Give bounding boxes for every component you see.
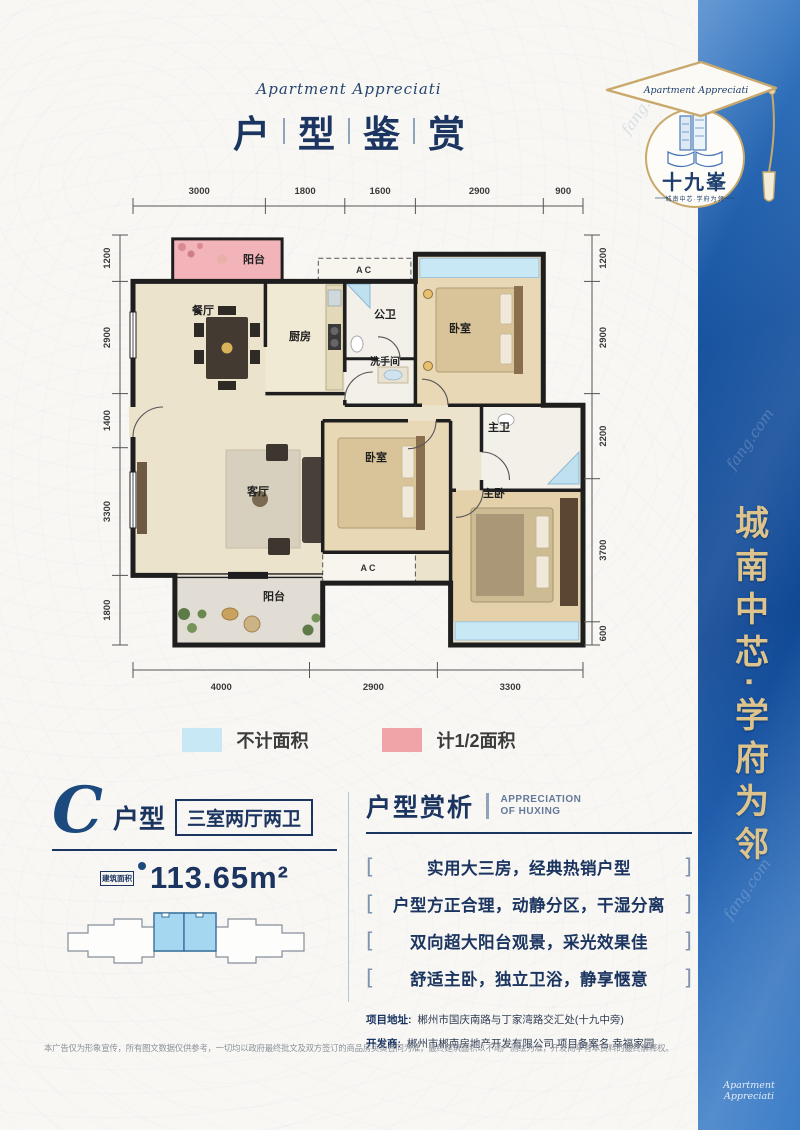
dim-label: 2200 — [598, 426, 609, 447]
section-divider-line — [348, 792, 349, 1002]
room-label-kitchen: 厨房 — [289, 329, 311, 343]
unit-info: C 户型 三室两厅两卫 建筑面积 113.65m² — [52, 782, 337, 896]
keyplan — [58, 893, 316, 989]
keyplan-highlight-units — [154, 913, 216, 951]
analysis-subtitle-line2: OF HUXING — [501, 806, 561, 817]
analysis-point-row: [ 实用大三房，经典热销户型 ] — [366, 848, 692, 885]
analysis-point-text: 实用大三房，经典热销户型 — [374, 855, 684, 879]
dimension-left: 1200 2900 1400 3300 1800 — [102, 235, 128, 645]
legend-label: 不计面积 — [236, 727, 308, 753]
analysis-point-row: [ 双向超大阳台观景，采光效果佳 ] — [366, 922, 692, 959]
legend-swatch-pink — [382, 728, 422, 752]
page-title: 户 型 鉴 赏 — [0, 104, 698, 158]
logo-cap-text: Apartment Appreciati — [643, 85, 749, 96]
dim-label: 3300 — [500, 682, 521, 693]
title-separator — [348, 118, 350, 144]
analysis-divider-line — [366, 832, 692, 834]
area-approx-dot — [138, 862, 146, 870]
unit-type-label: 户型 — [113, 799, 165, 840]
legend-item-half: 计1/2面积 — [382, 727, 515, 753]
project-address-label: 项目地址: — [366, 1014, 412, 1026]
dim-label: 3300 — [102, 501, 113, 522]
unit-letter: C — [52, 782, 103, 840]
dimension-right: 1200 2900 2200 3700 600 — [584, 235, 609, 645]
bracket-right: ] — [684, 966, 692, 990]
dim-label: 2900 — [598, 327, 609, 348]
logo-tassel — [763, 88, 775, 201]
analysis-subtitle: APPRECIATION OF HUXING — [501, 794, 582, 818]
title-char: 鉴 — [363, 104, 400, 158]
bracket-left: [ — [366, 892, 374, 916]
dim-label: 3000 — [189, 186, 210, 197]
title-char: 型 — [298, 104, 335, 158]
room-label-master-bedroom: 主卧 — [483, 486, 505, 500]
room-label-balcony-top: 阳台 — [243, 252, 265, 266]
analysis-point-text: 双向超大阳台观景，采光效果佳 — [374, 929, 684, 953]
dim-label: 1200 — [102, 248, 113, 269]
dim-label: 900 — [555, 186, 571, 197]
bracket-left: [ — [366, 966, 374, 990]
room-label-master-bath: 主卫 — [488, 420, 510, 434]
dim-label: 2900 — [102, 327, 113, 348]
bracket-right: ] — [684, 892, 692, 916]
floorplan: 阳台 餐厅 厨房 公卫 洗手间 卧室 主卫 卧室 客厅 主卧 阳台 AC AC … — [78, 162, 613, 714]
nocount-window-strip-top — [420, 258, 539, 277]
room-label-balcony-bottom: 阳台 — [263, 589, 285, 603]
bracket-right: ] — [684, 929, 692, 953]
dim-label: 1600 — [370, 186, 391, 197]
legend-item-nocount: 不计面积 — [182, 727, 308, 753]
project-address-value: 郴州市国庆南路与丁家湾路交汇处(十九中旁) — [417, 1014, 624, 1026]
dim-label: 1200 — [598, 248, 609, 269]
title-separator — [283, 118, 285, 144]
area-row: 建筑面积 113.65m² — [52, 860, 337, 896]
bracket-left: [ — [366, 929, 374, 953]
logo-emblem-circle: 十九峯 城南中芯·学府为邻 — [646, 109, 744, 207]
unit-layout-badge: 三室两厅两卫 — [175, 799, 313, 836]
room-label-dining: 餐厅 — [191, 303, 214, 317]
analysis-section: 户型赏析 APPRECIATION OF HUXING [ 实用大三房，经典热销… — [366, 788, 692, 1060]
analysis-point-row: [ 户型方正合理，动静分区，干湿分离 ] — [366, 885, 692, 922]
room-label-washroom: 洗手间 — [370, 355, 400, 368]
half-area-balcony — [173, 239, 282, 282]
legend: 不计面积 计1/2面积 — [0, 727, 698, 753]
disclaimer-text: 本广告仅为形象宣传，所有图文数据仅供参考，一切均以政府最终批文及双方签订的商品房… — [44, 1042, 692, 1054]
dim-label: 600 — [598, 625, 609, 641]
area-label-box: 建筑面积 — [100, 871, 134, 886]
room-label-bedroom-top: 卧室 — [449, 321, 471, 335]
dimension-bottom: 4000 2900 3300 — [133, 662, 583, 693]
area-value: 113.65m² — [150, 860, 289, 896]
title-separator — [413, 118, 415, 144]
unit-divider-line — [52, 849, 337, 851]
dim-label: 1800 — [102, 600, 113, 621]
dim-label: 3700 — [598, 540, 609, 561]
analysis-point-text: 舒适主卧，独立卫浴，静享惬意 — [374, 966, 684, 990]
bracket-left: [ — [366, 855, 374, 879]
legend-label: 计1/2面积 — [436, 727, 515, 753]
analysis-subtitle-line1: APPRECIATION — [501, 794, 582, 805]
poster-page: 城南中芯·学府为邻 Apartment Appreciati fang.com … — [0, 0, 800, 1130]
header-subtitle: Apartment Appreciati — [0, 80, 698, 98]
banner-footer-text: Apartment Appreciati — [698, 1080, 800, 1102]
dimension-top: 3000 1800 1600 2900 900 — [133, 186, 583, 214]
title-char: 户 — [233, 104, 270, 158]
ac-label-top: AC — [356, 265, 373, 275]
room-label-bedroom-mid: 卧室 — [365, 450, 387, 464]
logo-name: 十九峯 — [662, 170, 728, 194]
logo-tagline: 城南中芯·学府为邻 — [666, 195, 725, 203]
bracket-right: ] — [684, 855, 692, 879]
brand-logo: 十九峯 城南中芯·学府为邻 Apartment Appreciati — [600, 46, 784, 222]
analysis-title-bar — [486, 793, 489, 819]
dim-label: 1800 — [295, 186, 316, 197]
dim-label: 4000 — [211, 682, 232, 693]
room-label-living: 客厅 — [246, 484, 269, 498]
project-address-row: 项目地址: 郴州市国庆南路与丁家湾路交汇处(十九中旁) — [366, 1012, 692, 1027]
dim-label: 2900 — [469, 186, 490, 197]
analysis-title: 户型赏析 — [366, 788, 474, 824]
room-label-guest-bath: 公卫 — [374, 308, 396, 321]
analysis-point-row: [ 舒适主卧，独立卫浴，静享惬意 ] — [366, 959, 692, 996]
analysis-point-text: 户型方正合理，动静分区，干湿分离 — [374, 892, 684, 916]
nocount-bay-window-bottom — [455, 622, 578, 640]
banner-slogan: 城南中芯·学府为邻 — [725, 505, 774, 869]
title-char: 赏 — [428, 104, 465, 158]
analysis-points: [ 实用大三房，经典热销户型 ] [ 户型方正合理，动静分区，干湿分离 ] [ … — [366, 848, 692, 996]
dim-label: 2900 — [363, 682, 384, 693]
logo-cap: Apartment Appreciati — [607, 62, 776, 116]
ac-label-bottom: AC — [361, 563, 378, 573]
legend-swatch-blue — [182, 728, 222, 752]
dim-label: 1400 — [102, 410, 113, 431]
